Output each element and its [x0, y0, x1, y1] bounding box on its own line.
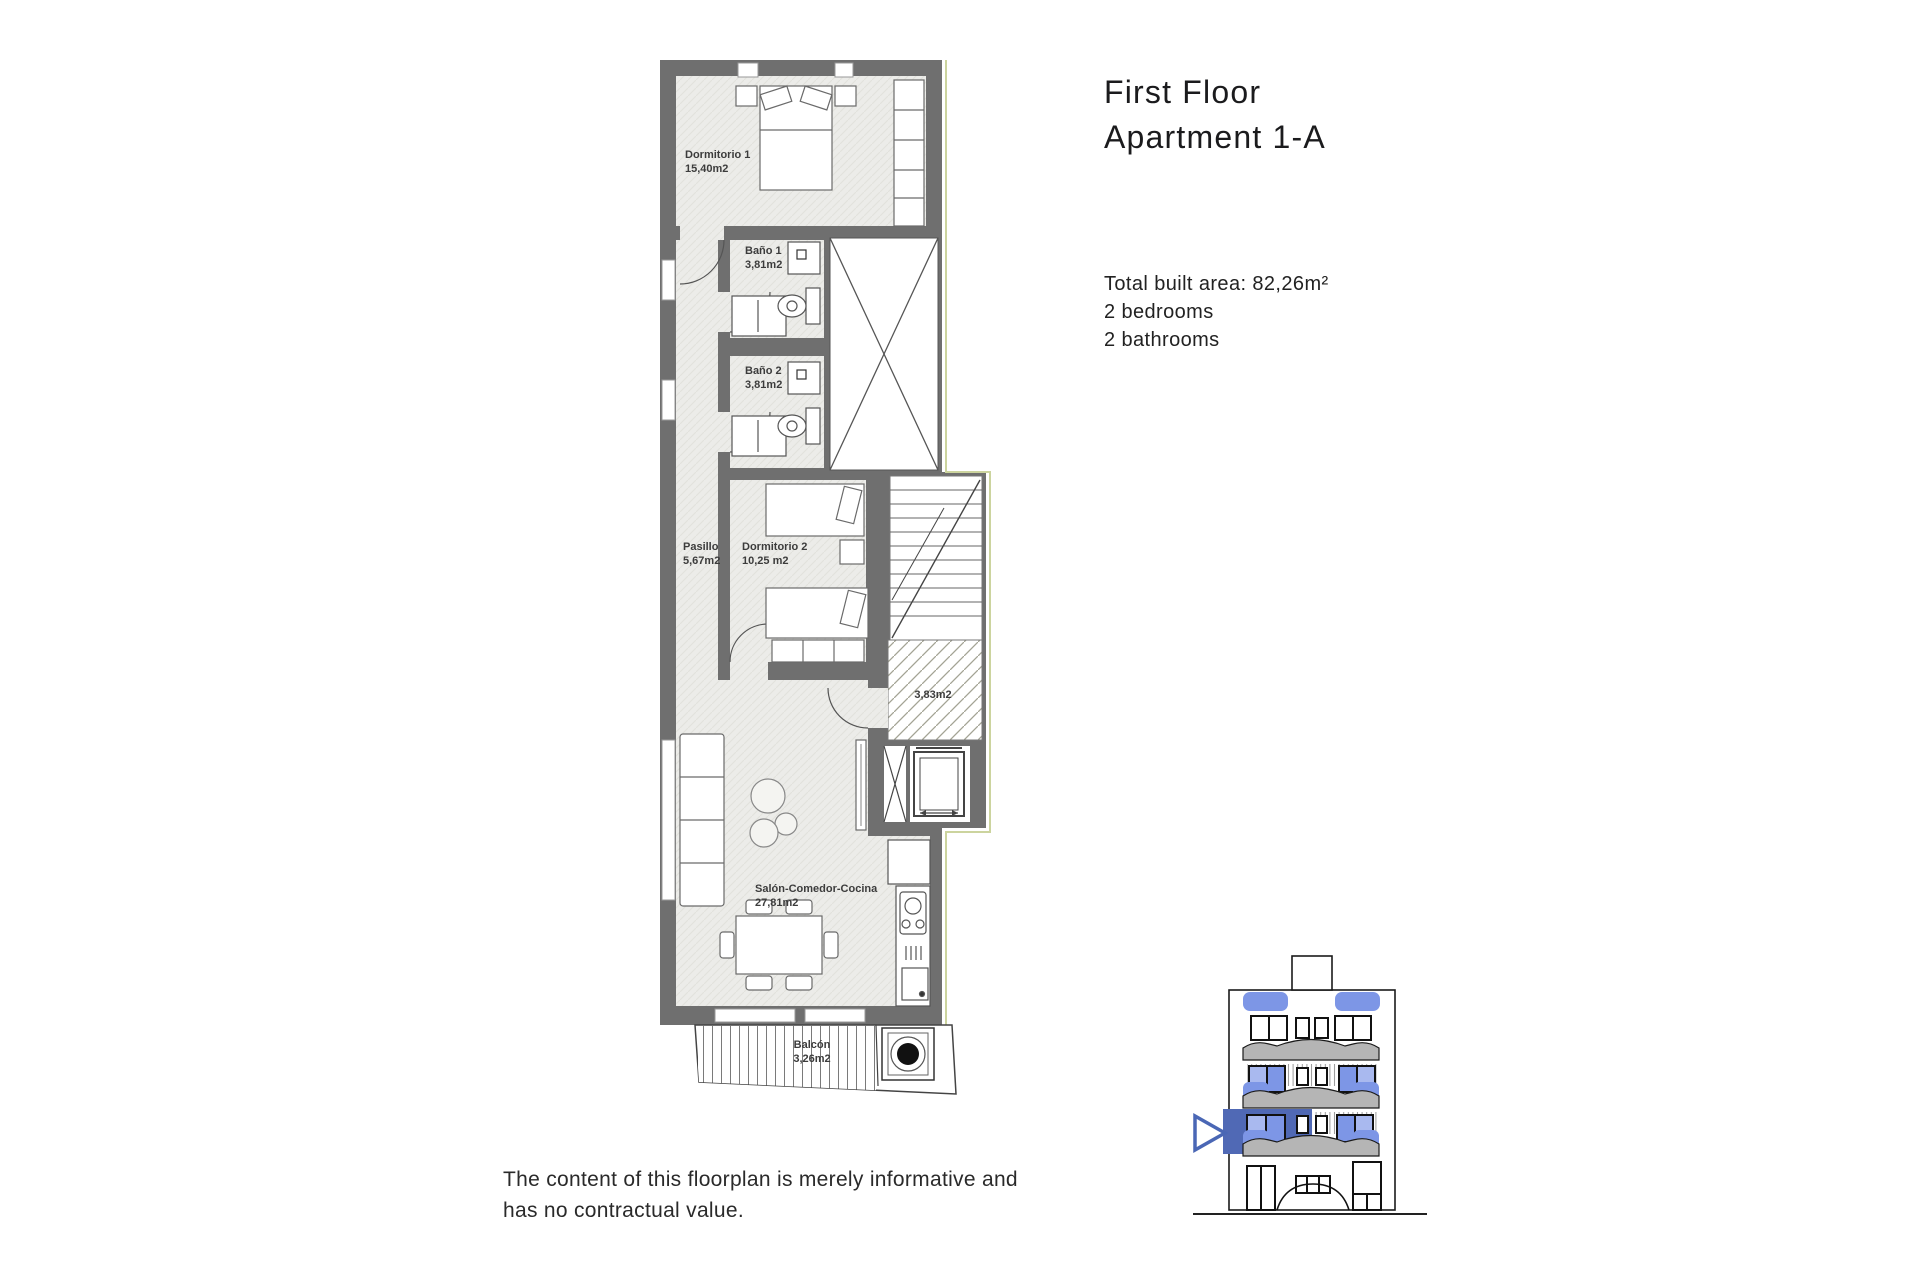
label-dormitorio2-area: 10,25 m2: [742, 555, 788, 567]
floorplan-page: Dormitorio 1 15,40m2 Baño 1 3,81m2 Baño …: [0, 0, 1920, 1280]
label-salon-name: Salón-Comedor-Cocina: [755, 883, 878, 895]
title-line-2: Apartment 1-A: [1104, 115, 1326, 160]
disclaimer-line-2: has no contractual value.: [503, 1195, 1018, 1226]
total-area-text: Total built area: 82,26m²: [1104, 270, 1329, 298]
label-balcon-name: Balcón: [794, 1039, 831, 1051]
label-salon-area: 27,81m2: [755, 897, 798, 909]
label-balcon-area: 3,26m2: [793, 1053, 830, 1065]
label-bano1-area: 3,81m2: [745, 259, 782, 271]
label-dormitorio2-name: Dormitorio 2: [742, 541, 807, 553]
disclaimer-line-1: The content of this floorplan is merely …: [503, 1164, 1018, 1195]
roof-box: [1292, 956, 1332, 990]
label-bano2-area: 3,81m2: [745, 379, 782, 391]
canopy-3: [1243, 1136, 1379, 1157]
location-arrow-icon: [1195, 1116, 1225, 1150]
bathrooms-text: 2 bathrooms: [1104, 326, 1329, 354]
apartment-summary: Total built area: 82,26m² 2 bedrooms 2 b…: [1104, 270, 1329, 354]
building-elevation: [1185, 938, 1485, 1250]
floorplan-drawing: Dormitorio 1 15,40m2 Baño 1 3,81m2 Baño …: [600, 40, 1080, 1150]
bedrooms-text: 2 bedrooms: [1104, 298, 1329, 326]
label-pasillo-name: Pasillo: [683, 541, 719, 553]
label-bano1-name: Baño 1: [745, 245, 782, 257]
disclaimer: The content of this floorplan is merely …: [503, 1164, 1018, 1226]
label-dormitorio1-name: Dormitorio 1: [685, 149, 750, 161]
page-title: First Floor Apartment 1-A: [1104, 70, 1326, 160]
label-landing-area: 3,83m2: [914, 689, 951, 701]
canopy-1: [1243, 1040, 1379, 1061]
canopy-2: [1243, 1088, 1379, 1109]
label-pasillo-area: 5,67m2: [683, 555, 720, 567]
label-bano2-name: Baño 2: [745, 365, 782, 377]
title-line-1: First Floor: [1104, 70, 1326, 115]
label-dormitorio1-area: 15,40m2: [685, 163, 728, 175]
